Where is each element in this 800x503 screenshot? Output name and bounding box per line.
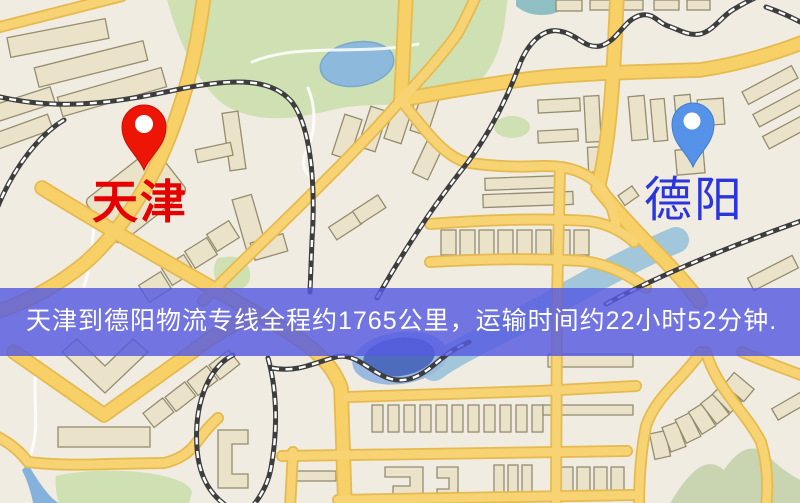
route-banner-text: 天津到德阳物流专线全程约1765公里，运输时间约22小时52分钟. xyxy=(0,301,777,337)
destination-label: 德阳 xyxy=(644,177,744,225)
map-canvas: 天津 德阳 天津到德阳物流专线全程约1765公里，运输时间约22小时52分钟. xyxy=(0,0,800,503)
map-image xyxy=(0,0,800,503)
route-banner: 天津到德阳物流专线全程约1765公里，运输时间约22小时52分钟. xyxy=(0,288,800,356)
origin-label: 天津 xyxy=(92,179,188,225)
